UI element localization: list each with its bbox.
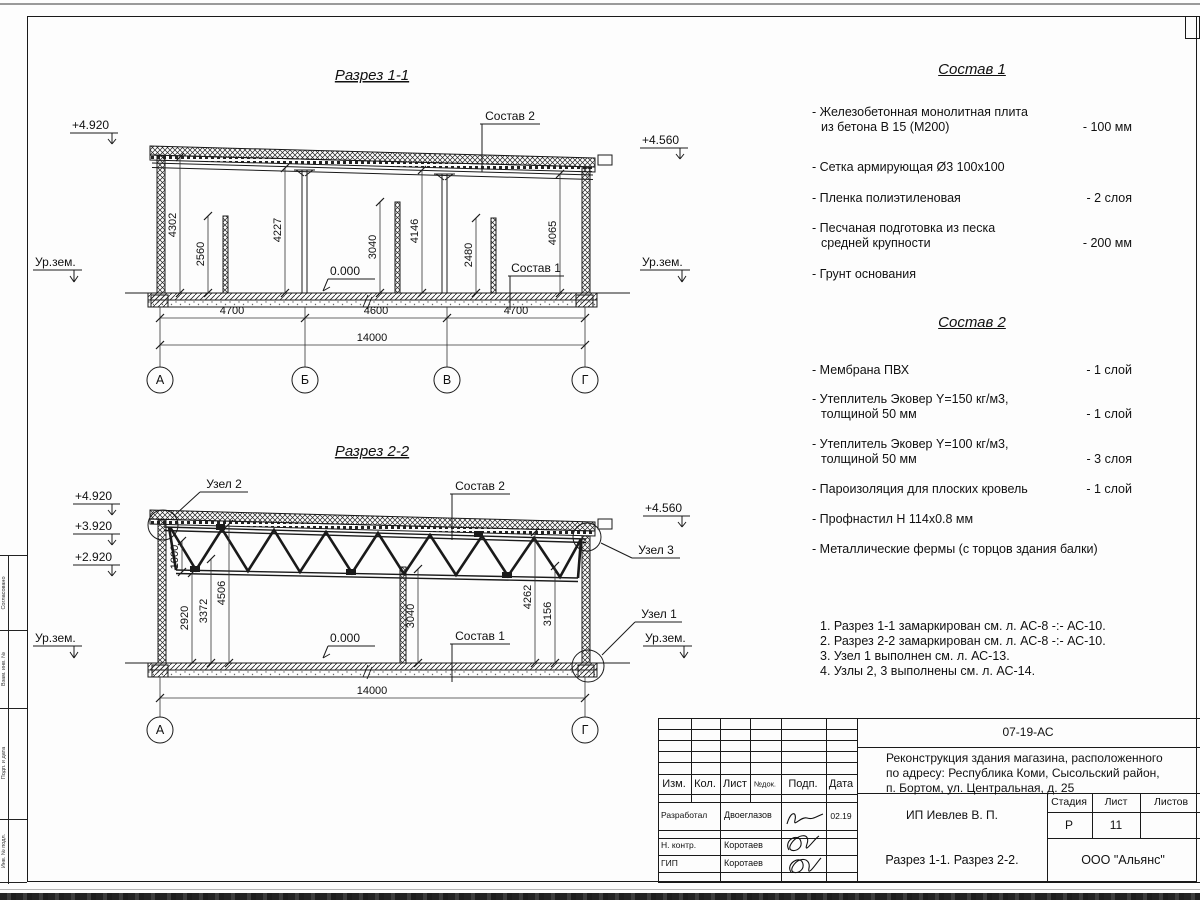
sheet-bottom-line — [0, 889, 1200, 890]
list-item: - Мембрана ПВХ - 1 слой — [812, 363, 1132, 378]
dim-label: 14000 — [357, 332, 388, 344]
name-label: Двоеглазов — [724, 810, 772, 820]
dim-label: 2560 — [195, 242, 207, 266]
note-line: 2. Разрез 2-2 замаркирован см. л. АС-8 -… — [820, 634, 1106, 649]
dim-label: 4302 — [167, 213, 179, 237]
axis-letter: Г — [582, 723, 589, 737]
side-stamp-line — [0, 819, 27, 820]
ground-level-label: Ур.зем. — [35, 631, 76, 645]
list-item: - Утеплитель Эковер Y=150 кг/м3,толщиной… — [812, 392, 1132, 422]
dim-label: 1000 — [169, 545, 181, 569]
frame-corner-box — [1185, 16, 1200, 39]
side-stamp-label: Инв. № подл. — [1, 823, 7, 879]
section-2-2-drawing: Разрез 2-2 +4.920 +3.920 +2.920 +4.560 У… — [30, 430, 720, 760]
side-stamp-label: Взам. инв. № — [1, 641, 7, 697]
signatures — [781, 802, 826, 882]
sostav1-title: Состав 1 — [812, 62, 1132, 77]
dim-label: 4227 — [272, 218, 284, 242]
axis-letter: А — [156, 723, 165, 737]
dim-label: 3156 — [542, 602, 554, 626]
list-item: - Профнастил Н 114х0.8 мм — [812, 512, 1132, 527]
doc-code: 07-19-АС — [1002, 725, 1053, 739]
ground-level-label: Ур.зем. — [35, 255, 76, 269]
elevation-label: +4.920 — [75, 489, 112, 503]
ground-level-label: Ур.зем. — [645, 631, 686, 645]
dim-label: 4146 — [409, 219, 421, 243]
dim-label: 4262 — [522, 585, 534, 609]
elevation-label: +4.560 — [645, 501, 682, 515]
zero-level-label: 0.000 — [330, 631, 360, 645]
dim-label: 14000 — [357, 685, 388, 697]
sostav1-callout: Состав 1 — [455, 629, 505, 643]
dim-label: 2920 — [179, 606, 191, 630]
note-line: 3. Узел 1 выполнен см. л. АС-13. — [820, 649, 1106, 664]
note-line: 4. Узлы 2, 3 выполнены см. л. АС-14. — [820, 664, 1106, 679]
side-stamp-line — [0, 630, 27, 631]
sostav2-list: Состав 2 - Мембрана ПВХ - 1 слой - Утепл… — [812, 315, 1132, 557]
sheet-top-edge — [0, 3, 1200, 5]
list-item: - Грунт основания — [812, 267, 1132, 282]
name-label: Коротаев — [724, 840, 763, 850]
axis-letter: Г — [582, 373, 589, 387]
sheet-title: Разрез 1-1. Разрез 2-2. — [885, 853, 1018, 867]
sheet-header: Лист — [1105, 796, 1128, 808]
sostav2-callout: Состав 2 — [485, 109, 535, 123]
list-item: - Сетка армирующая Ø3 100х100 — [812, 160, 1132, 175]
dim-label: 3372 — [198, 599, 210, 623]
axis-letter: В — [443, 373, 451, 387]
note-line: 1. Разрез 1-1 замаркирован см. л. АС-8 -… — [820, 619, 1106, 634]
node2-callout: Узел 2 — [206, 477, 242, 491]
notes-list: 1. Разрез 1-1 замаркирован см. л. АС-8 -… — [820, 619, 1106, 679]
node1-callout: Узел 1 — [641, 607, 677, 621]
elevation-label: +3.920 — [75, 519, 112, 533]
sostav2-title: Состав 2 — [812, 315, 1132, 330]
col-header: Подп. — [788, 778, 817, 790]
stage-header: Стадия — [1051, 796, 1087, 808]
role-label: Разработал — [661, 810, 707, 820]
side-stamp-label: Подп. и дата — [1, 735, 7, 791]
dim-label: 2480 — [463, 243, 475, 267]
sostav1-list: Состав 1 - Железобетонная монолитная пли… — [812, 62, 1132, 282]
list-item: - Железобетонная монолитная плитаиз бето… — [812, 105, 1132, 135]
date-label: 02.19 — [830, 811, 851, 821]
title-block: Изм. Кол. Лист №док. Подп. Дата Разработ… — [658, 718, 1200, 883]
name-label: Коротаев — [724, 858, 763, 868]
ground-level-label: Ур.зем. — [642, 255, 683, 269]
section-1-1-drawing: Разрез 1-1 +4.920 +4.560 Ур.зем. Ур.зем.… — [30, 60, 720, 425]
list-item: - Утеплитель Эковер Y=100 кг/м3,толщиной… — [812, 437, 1132, 467]
list-item: - Металлические фермы (с торцов здания б… — [812, 542, 1132, 557]
dim-label: 3040 — [405, 604, 417, 628]
elevation-label: +4.560 — [642, 133, 679, 147]
sheet-number: 11 — [1110, 818, 1122, 832]
list-item: - Пароизоляция для плоских кровель - 1 с… — [812, 482, 1132, 497]
role-label: ГИП — [661, 858, 678, 868]
project-line: п. Бортом, ул. Центральная, д. 25 — [886, 781, 1074, 795]
stage-value: Р — [1065, 818, 1073, 832]
side-stamp-label: Согласовано — [1, 565, 7, 621]
sheets-header: Листов — [1154, 796, 1188, 808]
dim-label: 4506 — [216, 581, 228, 605]
axis-letter: А — [156, 373, 165, 387]
node3-callout: Узел 3 — [638, 543, 674, 557]
sostav2-callout: Состав 2 — [455, 479, 505, 493]
sostav1-callout: Состав 1 — [511, 261, 561, 275]
section-title: Разрез 2-2 — [335, 443, 410, 460]
col-header: Кол. — [694, 778, 716, 790]
col-header: №док. — [754, 780, 776, 789]
dim-label: 4065 — [547, 221, 559, 245]
dim-label: 3040 — [367, 235, 379, 259]
company-name: ООО "Альянс" — [1081, 853, 1165, 867]
client-name: ИП Иевлев В. П. — [906, 808, 998, 822]
col-header: Дата — [829, 778, 853, 790]
role-label: Н. контр. — [661, 840, 696, 850]
dim-label: 4700 — [220, 305, 244, 317]
col-header: Лист — [723, 778, 747, 790]
side-stamp-line — [0, 708, 27, 709]
elevation-label: +2.920 — [75, 550, 112, 564]
section-title: Разрез 1-1 — [335, 67, 409, 84]
side-stamp: Согласовано Взам. инв. № Подп. и дата Ин… — [0, 555, 27, 883]
elevation-label: +4.920 — [72, 118, 109, 132]
dim-label: 4600 — [364, 305, 388, 317]
list-item: - Пленка полиэтиленовая - 2 слоя — [812, 191, 1132, 206]
col-header: Изм. — [662, 778, 686, 790]
dim-label: 4700 — [504, 305, 528, 317]
project-line: Реконструкция здания магазина, расположе… — [886, 751, 1163, 765]
axis-letter: Б — [301, 373, 309, 387]
list-item: - Песчаная подготовка из пескасредней кр… — [812, 221, 1132, 251]
side-stamp-divider — [8, 556, 9, 884]
scan-bottom-band — [0, 893, 1200, 900]
zero-level-label: 0.000 — [330, 264, 360, 278]
project-line: по адресу: Республика Коми, Сысольский р… — [886, 766, 1160, 780]
